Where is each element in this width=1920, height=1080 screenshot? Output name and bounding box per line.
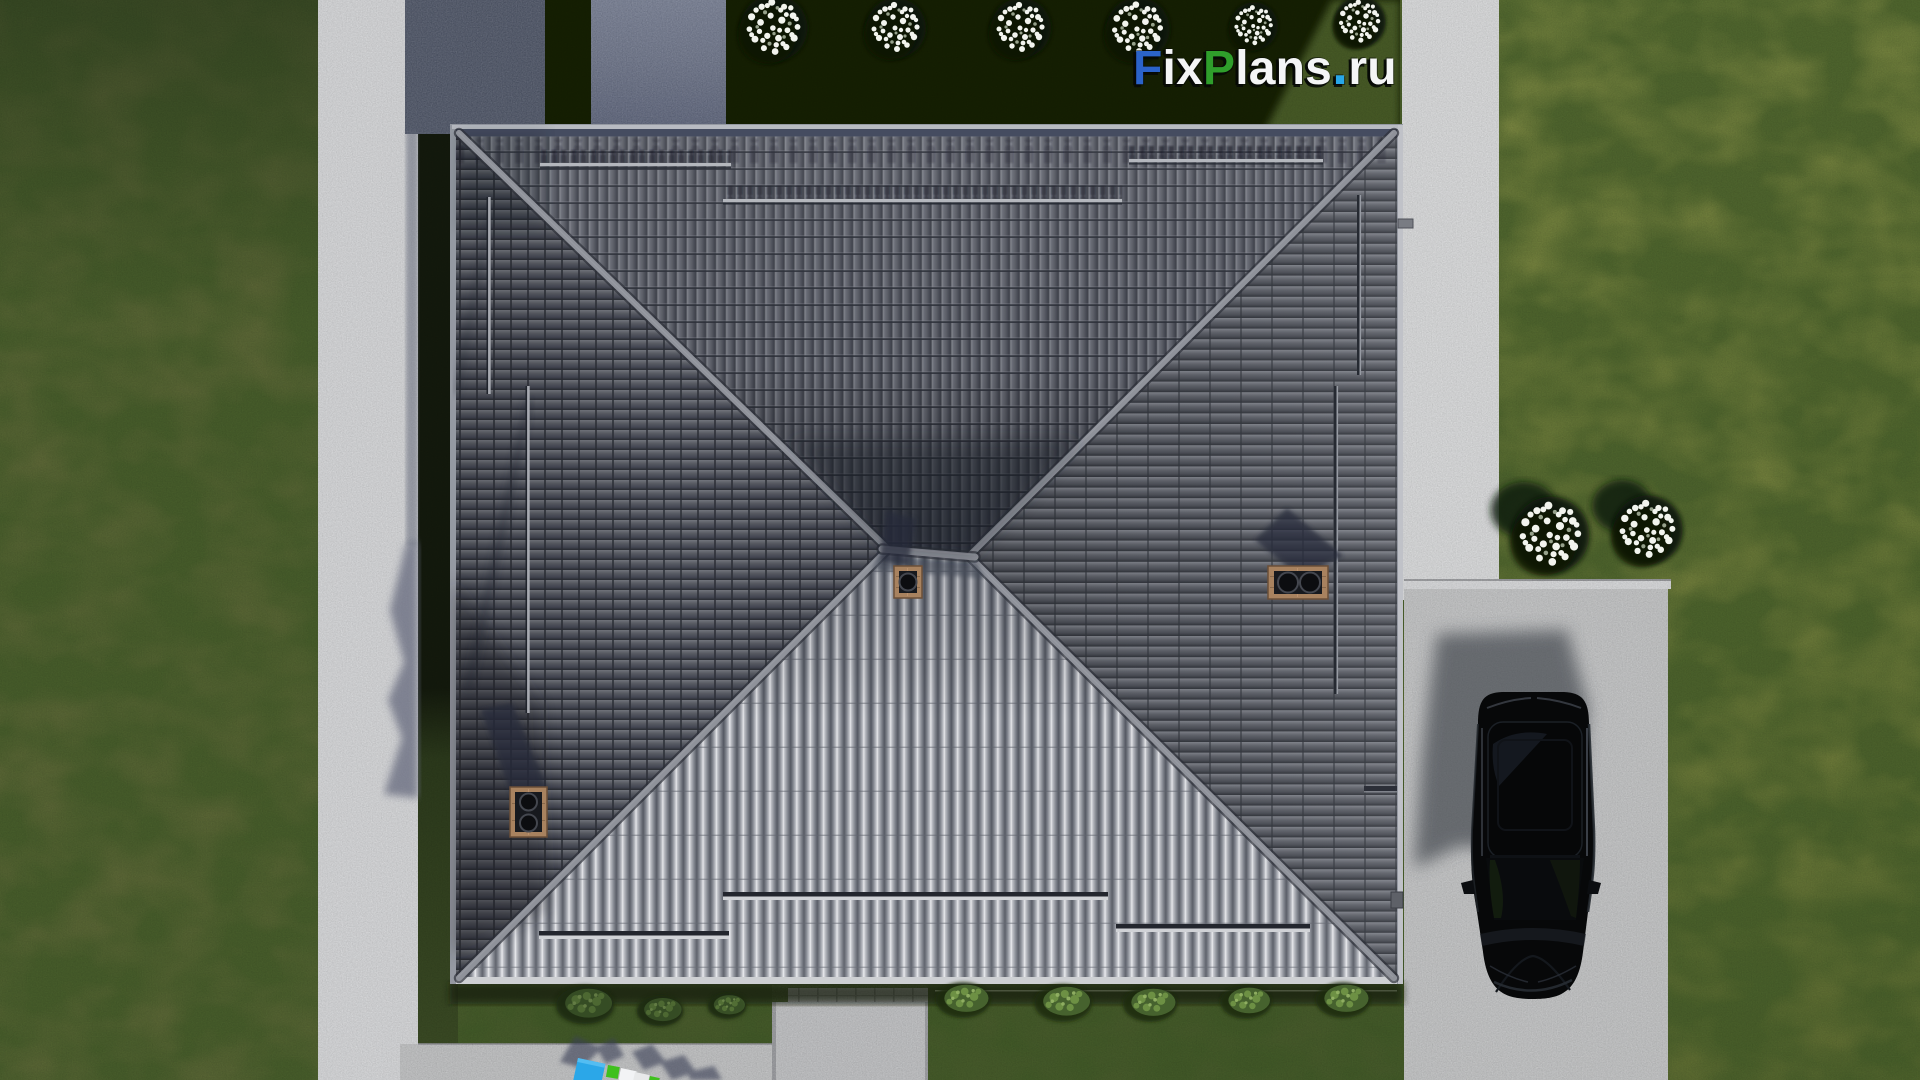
svg-text:FixPlans.ru: FixPlans.ru <box>1133 32 1397 97</box>
